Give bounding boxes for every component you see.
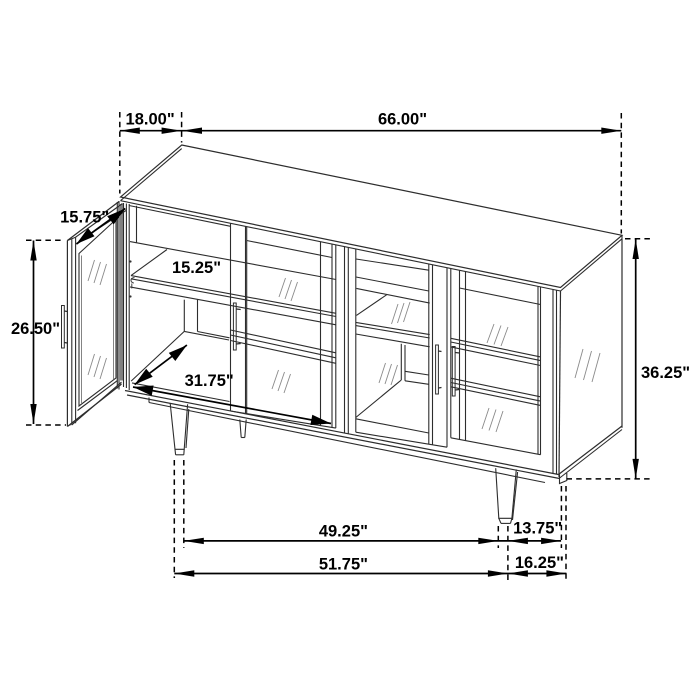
svg-text:15.25": 15.25" — [172, 259, 221, 277]
svg-text:15.75": 15.75" — [60, 209, 109, 227]
svg-text:31.75": 31.75" — [185, 372, 234, 390]
svg-text:66.00": 66.00" — [378, 111, 427, 129]
svg-text:18.00": 18.00" — [126, 111, 175, 129]
svg-text:49.25": 49.25" — [319, 523, 368, 541]
svg-text:13.75": 13.75" — [513, 520, 562, 538]
svg-text:36.25": 36.25" — [641, 364, 690, 382]
svg-text:16.25": 16.25" — [515, 554, 564, 572]
svg-text:26.50": 26.50" — [11, 320, 60, 338]
svg-text:51.75": 51.75" — [319, 556, 368, 574]
